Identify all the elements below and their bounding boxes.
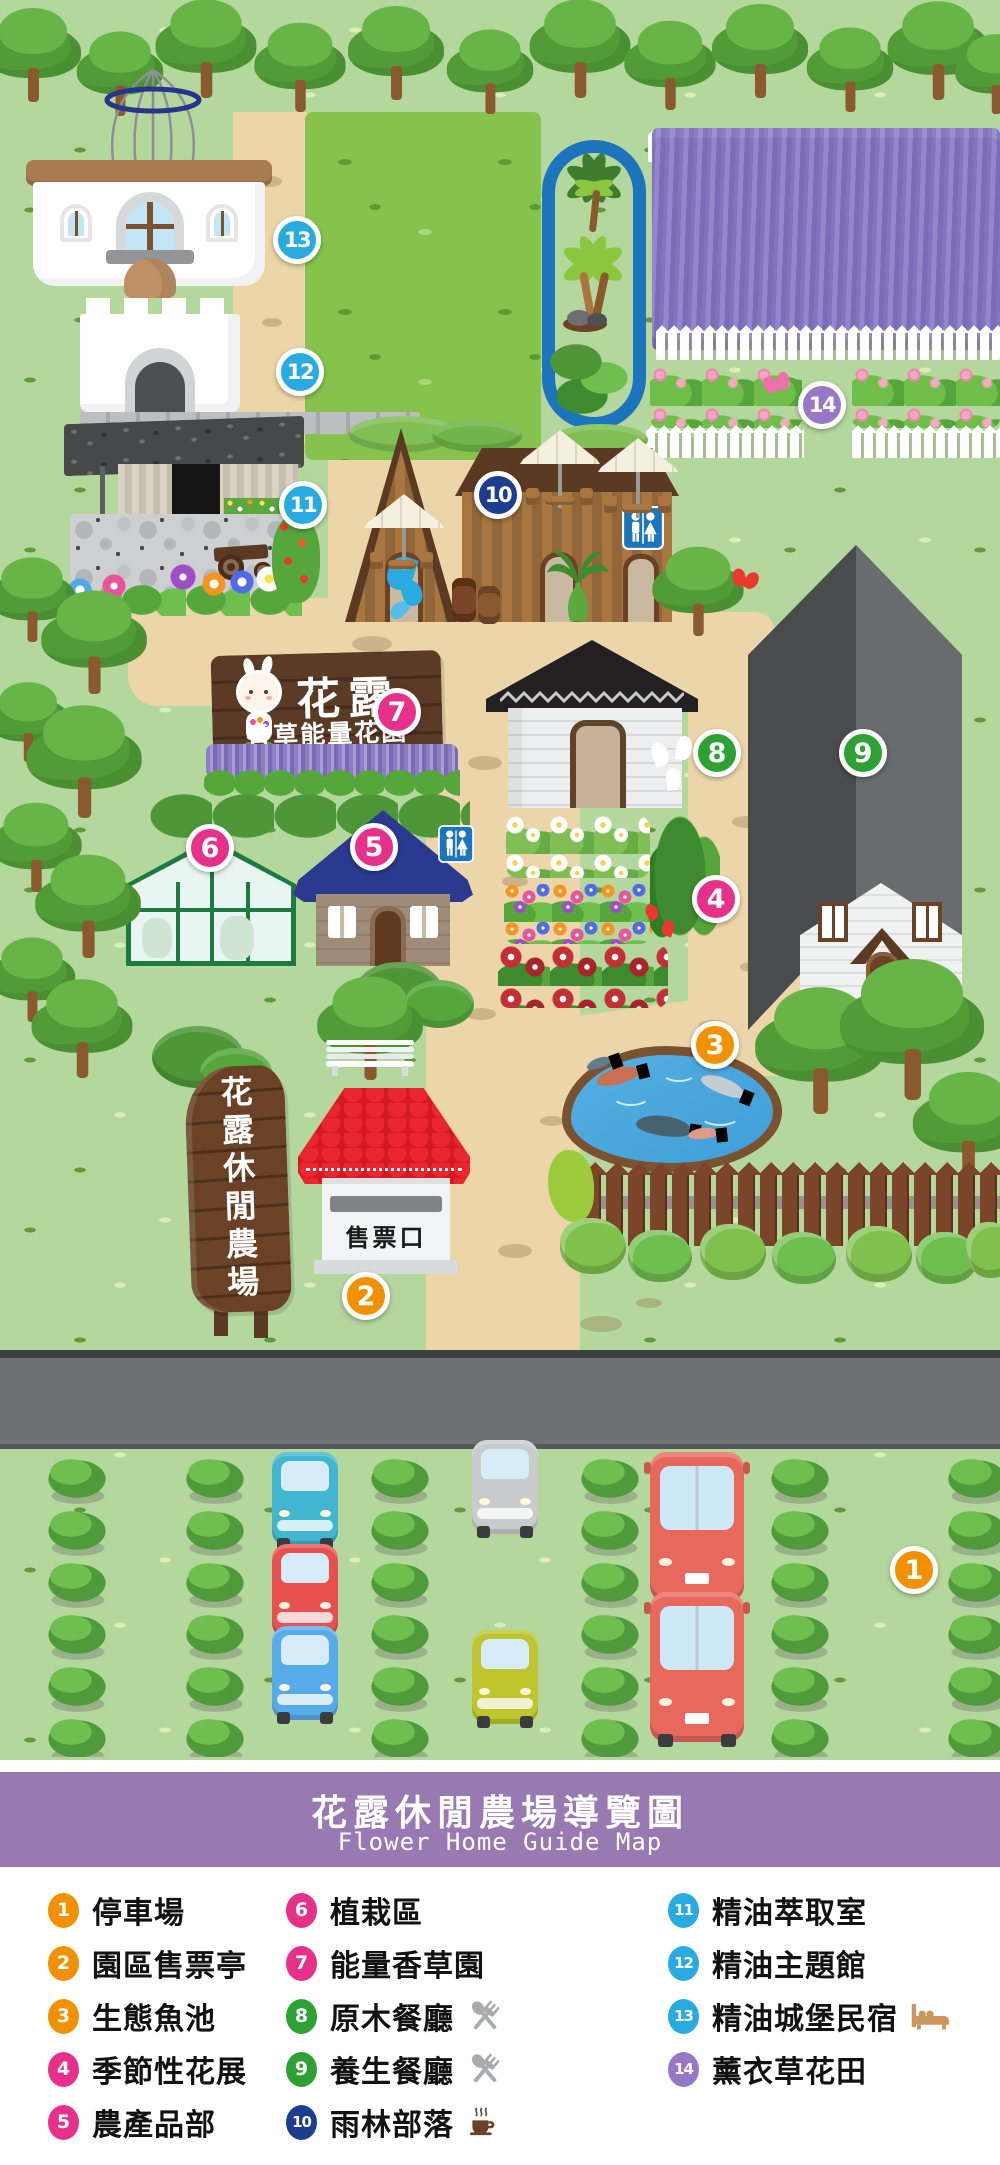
dirt-patch bbox=[636, 1298, 662, 1308]
legend-marker-11: 11 bbox=[668, 1893, 699, 1928]
flower-bed-mixed bbox=[504, 884, 652, 944]
legend-item: 14 薰衣草花田 bbox=[668, 2049, 950, 2089]
dirt-patch bbox=[352, 636, 392, 652]
farm-map-illustration: 花露 香草能量花園 bbox=[0, 0, 1000, 1760]
castle-arch-opening bbox=[135, 362, 185, 412]
flower bbox=[168, 562, 198, 592]
palm-tree-icon bbox=[548, 152, 640, 242]
tour-bus bbox=[650, 1452, 744, 1602]
legend-column-2: 6 植栽區 7 能量香草園 8 原木餐廳 9 養生餐廳 bbox=[286, 1890, 504, 2155]
car-blue bbox=[272, 1626, 338, 1720]
parking-hedge-column bbox=[183, 1455, 247, 1757]
monstera-plants bbox=[548, 332, 632, 418]
map-marker-3: 3 bbox=[691, 1021, 739, 1069]
farm-wooden-sign: 花露休閒農場 bbox=[184, 1064, 293, 1313]
shrub bbox=[772, 1232, 836, 1284]
car-gray bbox=[472, 1440, 538, 1534]
cafe-chair bbox=[604, 496, 617, 513]
guide-map-page: 花露 香草能量花園 bbox=[0, 0, 1000, 2165]
window-mullion bbox=[126, 224, 174, 229]
restroom-sign bbox=[438, 824, 474, 864]
cafe-chair bbox=[526, 488, 539, 505]
side-window bbox=[60, 204, 92, 242]
cafe-chair bbox=[370, 552, 383, 569]
picket-fence bbox=[646, 432, 804, 458]
legend-marker-1: 1 bbox=[48, 1893, 79, 1928]
road-edge bbox=[0, 1350, 1000, 1358]
legend-marker-6: 6 bbox=[286, 1893, 317, 1928]
barrel bbox=[478, 586, 500, 624]
water-ripple bbox=[612, 1086, 650, 1106]
tree bbox=[955, 34, 1000, 114]
side-window bbox=[206, 204, 238, 242]
tree bbox=[32, 979, 133, 1078]
legend-marker-9: 9 bbox=[286, 2052, 317, 2087]
legend-marker-10: 10 bbox=[286, 2105, 317, 2140]
palm-tree-icon bbox=[545, 236, 641, 336]
flower bbox=[228, 568, 256, 596]
tree bbox=[0, 8, 81, 102]
barn-window bbox=[818, 902, 848, 942]
legend-item: 9 養生餐廳 bbox=[286, 2049, 504, 2089]
map-marker-2: 2 bbox=[342, 1272, 390, 1320]
barrel bbox=[452, 578, 476, 622]
booth-base bbox=[314, 1260, 458, 1274]
flower-bed-daisies bbox=[506, 816, 650, 878]
shrub bbox=[846, 1226, 912, 1282]
dirt-patch bbox=[580, 1316, 622, 1332]
cafe-table bbox=[388, 560, 416, 569]
tree bbox=[447, 29, 533, 114]
legend-marker-3: 3 bbox=[48, 1999, 79, 2034]
dirt-patch bbox=[498, 1244, 532, 1258]
log-restaurant-door bbox=[570, 720, 626, 808]
legend-marker-2: 2 bbox=[48, 1946, 79, 1981]
legend-marker-4: 4 bbox=[48, 2052, 79, 2087]
parking-hedge-column bbox=[45, 1455, 109, 1757]
legend-item: 10 雨林部落 bbox=[286, 2102, 504, 2142]
car-red bbox=[272, 1544, 338, 1638]
legend-item: 6 植栽區 bbox=[286, 1890, 504, 1930]
map-marker-1: 1 bbox=[890, 1546, 938, 1594]
parking-hedge-column bbox=[578, 1455, 642, 1757]
car-yellow bbox=[472, 1630, 538, 1724]
booth-counter-band bbox=[330, 1196, 442, 1212]
dirt-patch bbox=[540, 1116, 564, 1126]
legend-item: 5 農產品部 bbox=[48, 2102, 247, 2142]
tree bbox=[41, 591, 147, 694]
coffee-cup-icon bbox=[466, 2105, 498, 2139]
legend-column-3: 11 精油萃取室 12 精油主題館 13 精油城堡民宿 14 薰衣草花田 bbox=[668, 1890, 950, 2102]
car-teal bbox=[272, 1452, 338, 1546]
roof-zigzag-trim bbox=[500, 690, 684, 704]
map-marker-5: 5 bbox=[350, 823, 398, 871]
legend-column-1: 1 停車場 2 園區售票亭 3 生態魚池 4 季節性花展 5 農產品部 bbox=[48, 1890, 247, 2155]
farm-sign-text: 花露休閒農場 bbox=[211, 1074, 265, 1303]
herb-field bbox=[305, 112, 541, 460]
tree bbox=[530, 0, 631, 98]
legend-marker-12: 12 bbox=[668, 1946, 699, 1981]
legend-marker-14: 14 bbox=[668, 2052, 699, 2087]
title-banner: 花露休閒農場導覽圖 Flower Home Guide Map bbox=[0, 1772, 1000, 1867]
rose-bushes bbox=[852, 366, 1000, 428]
tree bbox=[26, 705, 141, 818]
parking-hedge-column bbox=[945, 1455, 1000, 1757]
tree bbox=[254, 23, 345, 112]
flower bbox=[200, 570, 228, 598]
picket-fence bbox=[852, 432, 1000, 458]
tree bbox=[652, 547, 743, 636]
barn-window bbox=[912, 902, 942, 942]
lavender-field bbox=[652, 128, 1000, 350]
castle-dome-wireframe bbox=[78, 66, 228, 170]
parking-hedge-column bbox=[768, 1455, 832, 1757]
tree bbox=[624, 21, 715, 110]
legend-item: 4 季節性花展 bbox=[48, 2049, 247, 2089]
fork-and-spoon-icon bbox=[466, 1998, 504, 2034]
bench bbox=[326, 1040, 414, 1076]
map-marker-7: 7 bbox=[373, 688, 421, 736]
map-marker-9: 9 bbox=[839, 729, 887, 777]
legend-item: 7 能量香草園 bbox=[286, 1943, 504, 1983]
legend-marker-8: 8 bbox=[286, 1999, 317, 2034]
shop-window bbox=[328, 906, 356, 938]
shrub bbox=[560, 1218, 626, 1274]
bed-icon bbox=[910, 2001, 950, 2031]
picket-fence bbox=[656, 332, 1000, 360]
legend-item: 13 精油城堡民宿 bbox=[668, 1996, 950, 2036]
legend-marker-5: 5 bbox=[48, 2105, 79, 2140]
legend-item: 2 園區售票亭 bbox=[48, 1943, 247, 1983]
road bbox=[0, 1358, 1000, 1444]
cafe-chair bbox=[420, 552, 433, 569]
cafe-chair bbox=[580, 488, 593, 505]
ticket-window-label: 售票口 bbox=[322, 1218, 450, 1248]
bush bbox=[432, 420, 522, 452]
roof-trim bbox=[306, 1168, 462, 1171]
legend-item: 11 精油萃取室 bbox=[668, 1890, 950, 1930]
shop-door bbox=[370, 906, 406, 966]
map-subtitle: Flower Home Guide Map bbox=[0, 1828, 1000, 1856]
legend-item: 1 停車場 bbox=[48, 1890, 247, 1930]
map-marker-13: 13 bbox=[273, 216, 321, 264]
parking-hedge-column bbox=[368, 1455, 432, 1757]
dirt-patch bbox=[468, 756, 502, 770]
tree bbox=[807, 27, 893, 112]
shrub bbox=[700, 1224, 766, 1280]
shop-window bbox=[410, 906, 438, 938]
map-marker-14: 14 bbox=[798, 381, 846, 429]
dirt-patch bbox=[262, 318, 282, 327]
map-marker-11: 11 bbox=[279, 481, 327, 529]
water-ripple bbox=[662, 1064, 696, 1082]
legend-item: 3 生態魚池 bbox=[48, 1996, 247, 2036]
map-marker-8: 8 bbox=[693, 729, 741, 777]
water-ripple bbox=[700, 1106, 740, 1126]
tour-bus bbox=[650, 1592, 744, 1742]
palm-plant bbox=[545, 538, 611, 624]
tree bbox=[348, 6, 444, 100]
map-marker-10: 10 bbox=[474, 471, 522, 519]
legend-marker-7: 7 bbox=[286, 1946, 317, 1981]
cafe-table bbox=[622, 504, 652, 513]
legend-item: 8 原木餐廳 bbox=[286, 1996, 504, 2036]
cafe-chair bbox=[658, 496, 671, 513]
legend-item: 12 精油主題館 bbox=[668, 1943, 950, 1983]
tree bbox=[712, 4, 808, 98]
cafe-table bbox=[545, 496, 575, 505]
map-marker-4: 4 bbox=[692, 875, 740, 923]
shrub bbox=[628, 1230, 692, 1282]
fork-and-spoon-icon bbox=[466, 2051, 504, 2087]
map-marker-12: 12 bbox=[276, 348, 324, 396]
legend-marker-13: 13 bbox=[668, 1999, 699, 2034]
map-marker-6: 6 bbox=[186, 824, 234, 872]
